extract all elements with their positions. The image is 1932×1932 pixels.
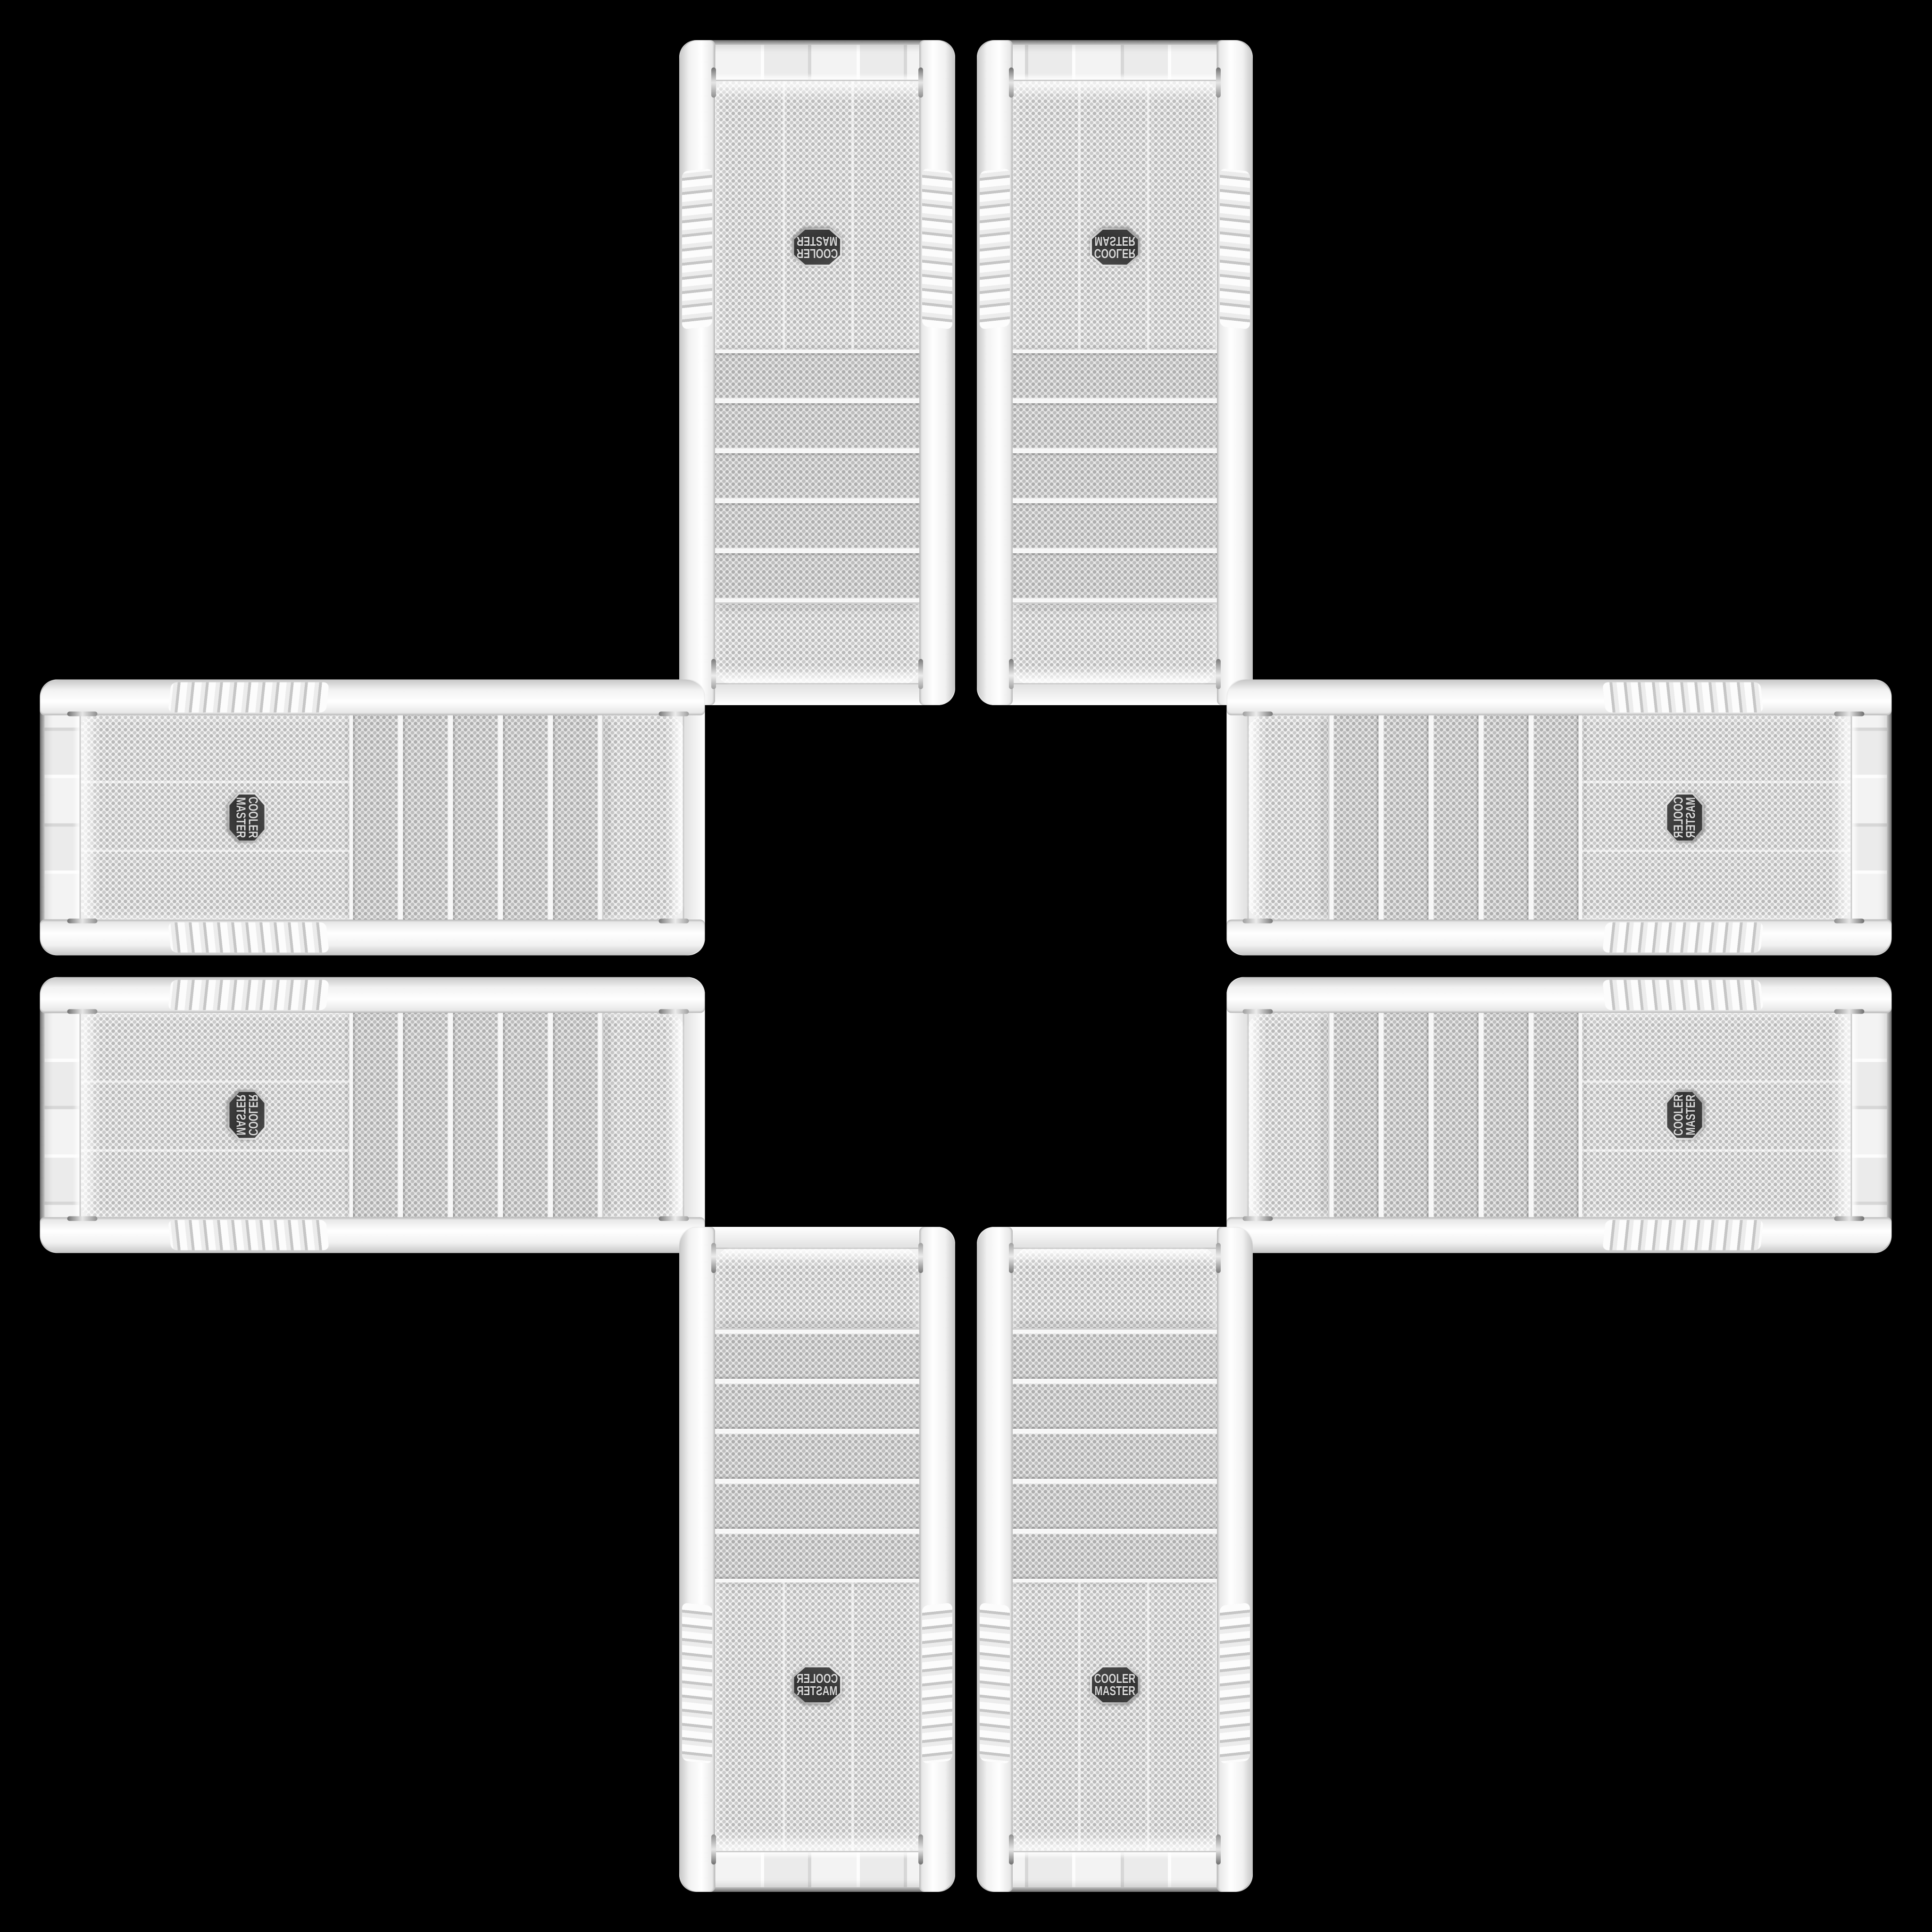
badge-text-line1: COOLER [797, 246, 838, 260]
drive-bay-covers [350, 1012, 602, 1218]
mesh-top-bezel [1012, 1246, 1218, 1330]
pc-case-top-right: COOLER MASTER [977, 40, 1253, 705]
drive-bay-cover [714, 1482, 920, 1529]
pc-case-top-left: COOLER MASTER [679, 40, 955, 705]
grip-ribs [1602, 980, 1764, 1010]
drive-bay-cover [714, 1382, 920, 1429]
grip-ribs [1220, 168, 1250, 330]
case-top-cap [980, 1227, 1250, 1248]
grip-ribs [168, 683, 329, 713]
badge-face: COOLER MASTER [794, 230, 841, 265]
drive-bay-cover [1012, 553, 1218, 600]
badge-text-line2: MASTER [1684, 797, 1698, 838]
drive-bay-cover [1332, 715, 1379, 921]
drive-bay-cover [1012, 353, 1218, 400]
grip-ribs [922, 1603, 952, 1764]
mesh-lower-panel [714, 78, 920, 350]
grip-ribs [168, 923, 329, 953]
drive-bay-cover [1482, 715, 1529, 921]
grip-ribs [1602, 1220, 1764, 1250]
grip-ribs [1602, 923, 1764, 953]
drive-bay-cover [1382, 715, 1429, 921]
cooler-master-badge: COOLER MASTER [1090, 228, 1140, 266]
drive-bay-cover [453, 1012, 500, 1218]
chrome-trim [1004, 40, 1226, 45]
grip-ribs [980, 168, 1010, 330]
grip-ribs [682, 168, 712, 330]
badge-rim: COOLER MASTER [792, 228, 842, 266]
bottom-cap-tabs [682, 40, 952, 80]
cooler-master-badge: COOLER MASTER [228, 1090, 266, 1140]
drive-bay-cover [1532, 1012, 1579, 1218]
front-mesh-panel: COOLER MASTER [1246, 1012, 1854, 1218]
cooler-master-badge: COOLER MASTER [228, 792, 266, 842]
front-mesh-panel: COOLER MASTER [714, 1246, 920, 1854]
badge-text-line2: MASTER [234, 1095, 248, 1136]
black-backdrop: { "scene": { "description": "Eight ident… [0, 0, 1932, 1932]
left-side-rail [919, 40, 955, 705]
pc-case-bottom-right: COOLER MASTER [977, 1227, 1253, 1892]
right-side-rail [1217, 1227, 1253, 1892]
badge-face: COOLER MASTER [1667, 1092, 1702, 1138]
drive-bay-cover [403, 715, 450, 921]
drive-bay-cover [403, 1012, 450, 1218]
drive-bay-cover [1012, 1532, 1218, 1579]
case-top-cap [684, 683, 705, 953]
bottom-cap-tabs [682, 1852, 952, 1892]
left-side-rail [40, 1217, 705, 1253]
right-side-rail [1217, 40, 1253, 705]
badge-rim: COOLER MASTER [228, 1090, 266, 1140]
badge-face: COOLER MASTER [1092, 1667, 1138, 1702]
badge-rim: COOLER MASTER [228, 792, 266, 842]
drive-bay-cover [1012, 503, 1218, 550]
badge-text-line2: MASTER [797, 1684, 838, 1698]
drive-bay-cover [714, 1332, 920, 1379]
front-mesh-panel: COOLER MASTER [1012, 78, 1218, 686]
drive-bay-cover [1012, 1382, 1218, 1429]
chrome-trim [707, 40, 928, 45]
drive-bay-cover [353, 1012, 400, 1218]
bottom-cap-tabs [40, 980, 80, 1250]
case-top-cap [682, 1227, 952, 1248]
badge-text-line2: MASTER [234, 797, 248, 838]
left-side-rail [1227, 1217, 1892, 1253]
front-mesh-panel: COOLER MASTER [1012, 1246, 1218, 1854]
front-mesh-panel: COOLER MASTER [78, 1012, 686, 1218]
grip-ribs [682, 1603, 712, 1764]
drive-bay-cover [353, 715, 400, 921]
drive-bay-cover [714, 403, 920, 450]
drive-bay-cover [1532, 715, 1579, 921]
cooler-master-badge: COOLER MASTER [792, 228, 842, 266]
left-side-rail [919, 1227, 955, 1892]
drive-bay-cover [714, 453, 920, 500]
right-side-rail [1227, 977, 1892, 1013]
cooler-master-badge: COOLER MASTER [1666, 1090, 1704, 1140]
badge-text-line1: COOLER [246, 797, 260, 838]
case-top-cap [1227, 683, 1248, 953]
pc-case: COOLER MASTER [40, 977, 705, 1253]
grip-ribs [922, 168, 952, 330]
badge-text-line2: MASTER [1684, 1095, 1698, 1136]
mesh-top-bezel [602, 1012, 686, 1218]
drive-bay-cover [553, 715, 600, 921]
mesh-top-bezel [1012, 602, 1218, 686]
pc-case: COOLER MASTER [679, 40, 955, 705]
case-bottom-cap [40, 683, 81, 953]
drive-bay-cover [1482, 1012, 1529, 1218]
badge-rim: COOLER MASTER [1090, 1666, 1140, 1704]
bottom-cap-tabs [1852, 980, 1892, 1250]
case-top-cap [980, 684, 1250, 705]
drive-bay-covers [350, 715, 602, 921]
mesh-top-bezel [1246, 1012, 1330, 1218]
badge-text-line2: MASTER [1094, 234, 1135, 248]
badge-face: COOLER MASTER [1092, 230, 1138, 265]
drive-bay-covers [1330, 715, 1582, 921]
drive-bay-cover [714, 353, 920, 400]
badge-rim: COOLER MASTER [1666, 792, 1704, 842]
pc-case: COOLER MASTER [1227, 680, 1892, 956]
case-bottom-cap [1851, 683, 1892, 953]
bottom-cap-tabs [980, 1852, 1250, 1892]
pc-case-right-top: COOLER MASTER [1227, 679, 1892, 955]
drive-bay-cover [1012, 1432, 1218, 1479]
right-side-rail [40, 920, 705, 956]
drive-bay-cover [714, 553, 920, 600]
drive-bay-cover [714, 503, 920, 550]
drive-bay-covers [714, 1330, 920, 1582]
drive-bay-covers [714, 350, 920, 602]
badge-face: COOLER MASTER [230, 794, 265, 841]
mesh-lower-panel [1012, 78, 1218, 350]
badge-text-line1: COOLER [246, 1094, 260, 1136]
drive-bay-cover [714, 1432, 920, 1479]
bottom-cap-tabs [1852, 683, 1892, 953]
badge-text-line1: COOLER [1094, 246, 1136, 260]
drive-bay-cover [453, 715, 500, 921]
case-bottom-cap [980, 40, 1250, 81]
right-side-rail [679, 40, 715, 705]
mesh-top-bezel [714, 602, 920, 686]
drive-bay-cover [1012, 1332, 1218, 1379]
badge-text-line2: MASTER [797, 234, 838, 248]
pc-case: COOLER MASTER [679, 1227, 955, 1892]
chrome-trim [707, 1887, 928, 1892]
drive-bay-cover [503, 715, 550, 921]
mesh-lower-panel [78, 1012, 350, 1218]
mesh-top-bezel [714, 1246, 920, 1330]
badge-rim: COOLER MASTER [792, 1666, 842, 1704]
pc-case: COOLER MASTER [1227, 977, 1892, 1253]
badge-text-line2: MASTER [1094, 1684, 1135, 1698]
drive-bay-cover [1382, 1012, 1429, 1218]
case-bottom-cap [682, 1851, 952, 1892]
chrome-trim [1887, 707, 1892, 928]
chrome-trim [40, 1004, 45, 1226]
drive-bay-cover [1012, 1482, 1218, 1529]
grip-ribs [168, 980, 329, 1010]
case-bottom-cap [1851, 980, 1892, 1250]
chrome-trim [1004, 1887, 1226, 1892]
chrome-trim [40, 707, 45, 928]
pc-case: COOLER MASTER [977, 40, 1253, 705]
badge-rim: COOLER MASTER [1090, 228, 1140, 266]
mesh-lower-panel [1582, 1012, 1854, 1218]
bottom-cap-tabs [980, 40, 1250, 80]
pc-case-bottom-left: COOLER MASTER [679, 1227, 955, 1892]
pc-case-left-bottom: COOLER MASTER [40, 977, 705, 1253]
right-side-rail [40, 977, 705, 1013]
right-side-rail [679, 1227, 715, 1892]
cooler-master-badge: COOLER MASTER [792, 1666, 842, 1704]
left-side-rail [40, 680, 705, 716]
right-side-rail [1227, 920, 1892, 956]
badge-face: COOLER MASTER [794, 1667, 841, 1702]
drive-bay-cover [1432, 715, 1479, 921]
mesh-top-bezel [1246, 715, 1330, 921]
bottom-cap-tabs [40, 683, 80, 953]
pc-case-right-bottom: COOLER MASTER [1227, 977, 1892, 1253]
mesh-lower-panel [78, 715, 350, 921]
drive-bay-cover [1432, 1012, 1479, 1218]
drive-bay-covers [1330, 1012, 1582, 1218]
left-side-rail [1227, 680, 1892, 716]
case-top-cap [1227, 980, 1248, 1250]
drive-bay-cover [714, 1532, 920, 1579]
mesh-lower-panel [1582, 715, 1854, 921]
front-mesh-panel: COOLER MASTER [714, 78, 920, 686]
left-side-rail [977, 1227, 1013, 1892]
drive-bay-cover [553, 1012, 600, 1218]
badge-face: COOLER MASTER [230, 1092, 265, 1138]
mesh-lower-panel [714, 1582, 920, 1854]
case-top-cap [684, 980, 705, 1250]
grip-ribs [168, 1220, 329, 1250]
drive-bay-covers [1012, 1330, 1218, 1582]
case-bottom-cap [980, 1851, 1250, 1892]
grip-ribs [1602, 683, 1764, 713]
case-bottom-cap [40, 980, 81, 1250]
mesh-lower-panel [1012, 1582, 1218, 1854]
front-mesh-panel: COOLER MASTER [1246, 715, 1854, 921]
case-top-cap [682, 684, 952, 705]
pc-case: COOLER MASTER [977, 1227, 1253, 1892]
drive-bay-cover [1012, 453, 1218, 500]
chrome-trim [1887, 1004, 1892, 1226]
drive-bay-cover [1012, 403, 1218, 450]
drive-bay-cover [1332, 1012, 1379, 1218]
drive-bay-cover [503, 1012, 550, 1218]
cooler-master-badge: COOLER MASTER [1090, 1666, 1140, 1704]
cooler-master-badge: COOLER MASTER [1666, 792, 1704, 842]
mesh-top-bezel [602, 715, 686, 921]
pc-case-left-top: COOLER MASTER [40, 679, 705, 955]
drive-bay-covers [1012, 350, 1218, 602]
grip-ribs [980, 1603, 1010, 1764]
badge-face: COOLER MASTER [1667, 794, 1702, 841]
front-mesh-panel: COOLER MASTER [78, 715, 686, 921]
case-bottom-cap [682, 40, 952, 81]
pc-case: COOLER MASTER [40, 680, 705, 956]
left-side-rail [977, 40, 1013, 705]
badge-rim: COOLER MASTER [1666, 1090, 1704, 1140]
grip-ribs [1220, 1603, 1250, 1764]
